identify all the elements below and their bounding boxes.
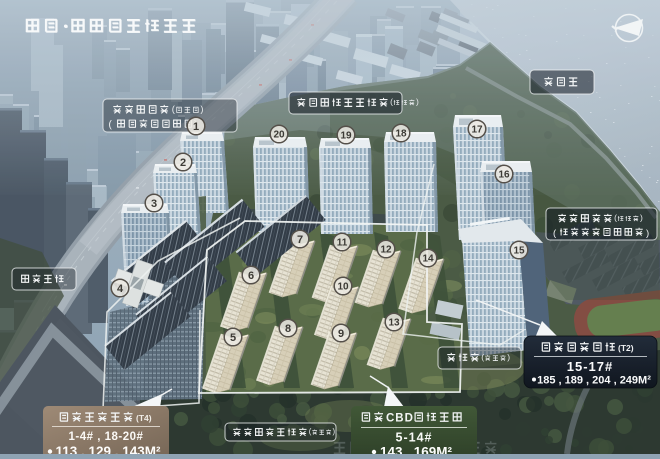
svg-text:16: 16 [498, 170, 510, 181]
svg-text:3: 3 [151, 198, 157, 210]
svg-text:15-17#: 15-17# [567, 359, 613, 374]
svg-text:): ) [416, 97, 419, 107]
svg-text:(T2): (T2) [618, 343, 634, 353]
svg-text:(: ( [390, 97, 393, 107]
svg-text:(: ( [481, 352, 484, 362]
svg-text:143 , 169M²: 143 , 169M² [380, 445, 453, 455]
svg-text:9: 9 [338, 328, 344, 340]
svg-text:13: 13 [388, 318, 400, 329]
svg-text:4: 4 [117, 283, 124, 295]
svg-text:8: 8 [285, 323, 291, 335]
svg-text:17: 17 [471, 125, 483, 136]
svg-text:20: 20 [273, 130, 285, 141]
svg-text:5-14#: 5-14# [396, 431, 433, 445]
svg-text:113 , 129 , 143M²: 113 , 129 , 143M² [55, 444, 161, 454]
svg-text:6: 6 [248, 270, 254, 282]
svg-text:): ) [640, 213, 643, 223]
svg-text:1-4# , 18-20#: 1-4# , 18-20# [69, 431, 144, 443]
svg-text:19: 19 [340, 131, 352, 142]
svg-text:(: ( [309, 427, 312, 436]
svg-text:12: 12 [380, 245, 392, 256]
svg-text:10: 10 [337, 282, 349, 293]
svg-text:CBD: CBD [386, 413, 414, 425]
svg-text:): ) [200, 103, 203, 114]
svg-text:): ) [646, 228, 649, 239]
svg-text:(: ( [614, 213, 617, 223]
svg-text:): ) [507, 352, 510, 362]
svg-text:185 , 189 , 204 , 249M²: 185 , 189 , 204 , 249M² [537, 375, 651, 387]
svg-text:15: 15 [513, 246, 525, 257]
svg-text:7: 7 [297, 234, 303, 246]
svg-text:2: 2 [180, 157, 186, 169]
svg-text:18: 18 [395, 129, 407, 140]
svg-text:11: 11 [337, 238, 348, 249]
svg-text:5: 5 [230, 332, 236, 344]
svg-text:(T4): (T4) [136, 413, 152, 423]
svg-text:1: 1 [193, 121, 199, 133]
svg-text:14: 14 [422, 254, 434, 265]
svg-text:): ) [333, 427, 336, 436]
